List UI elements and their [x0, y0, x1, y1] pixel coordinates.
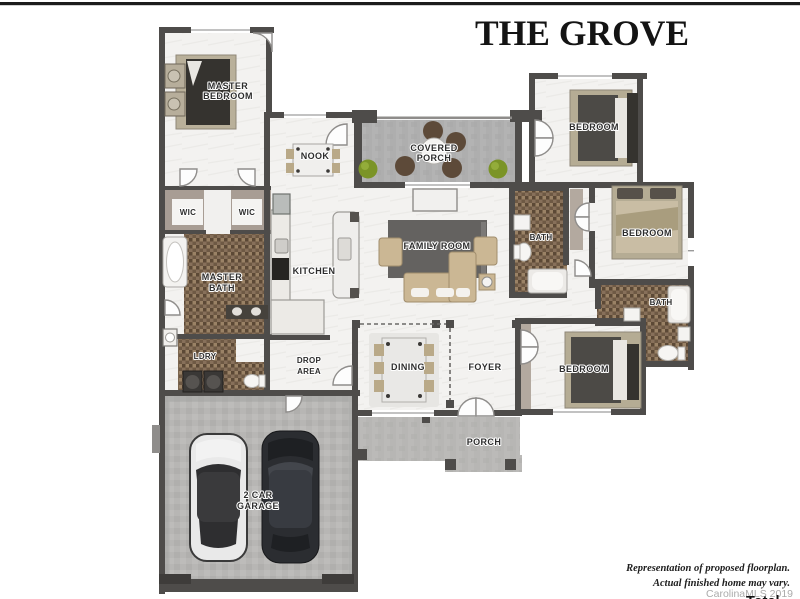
- svg-text:MASTER: MASTER: [202, 272, 242, 282]
- svg-text:LDRY: LDRY: [194, 352, 217, 361]
- svg-text:THE GROVE: THE GROVE: [475, 13, 689, 53]
- svg-text:AREA: AREA: [297, 367, 321, 376]
- svg-text:BEDROOM: BEDROOM: [203, 91, 253, 101]
- svg-text:MASTER: MASTER: [208, 81, 248, 91]
- svg-text:PORCH: PORCH: [417, 153, 452, 163]
- svg-text:PORCH: PORCH: [467, 437, 502, 447]
- svg-text:FOYER: FOYER: [468, 362, 501, 372]
- svg-text:BEDROOM: BEDROOM: [622, 228, 672, 238]
- svg-text:BATH: BATH: [209, 283, 235, 293]
- svg-text:KITCHEN: KITCHEN: [293, 266, 336, 276]
- svg-text:Representation of proposed flo: Representation of proposed floorplan.: [625, 563, 790, 574]
- svg-text:WIC: WIC: [180, 208, 196, 217]
- svg-text:Total: Total: [746, 594, 780, 599]
- svg-text:BEDROOM: BEDROOM: [559, 364, 609, 374]
- svg-text:DINING: DINING: [391, 362, 425, 372]
- svg-text:BATH: BATH: [650, 298, 673, 307]
- svg-text:BEDROOM: BEDROOM: [569, 122, 619, 132]
- svg-text:GARAGE: GARAGE: [237, 501, 279, 511]
- svg-text:WIC: WIC: [239, 208, 255, 217]
- svg-text:COVERED: COVERED: [410, 143, 457, 153]
- svg-text:BATH: BATH: [530, 233, 553, 242]
- svg-text:FAMILY ROOM: FAMILY ROOM: [404, 241, 471, 251]
- svg-text:2 CAR: 2 CAR: [243, 490, 272, 500]
- svg-text:DROP: DROP: [297, 356, 322, 365]
- svg-text:NOOK: NOOK: [301, 151, 330, 161]
